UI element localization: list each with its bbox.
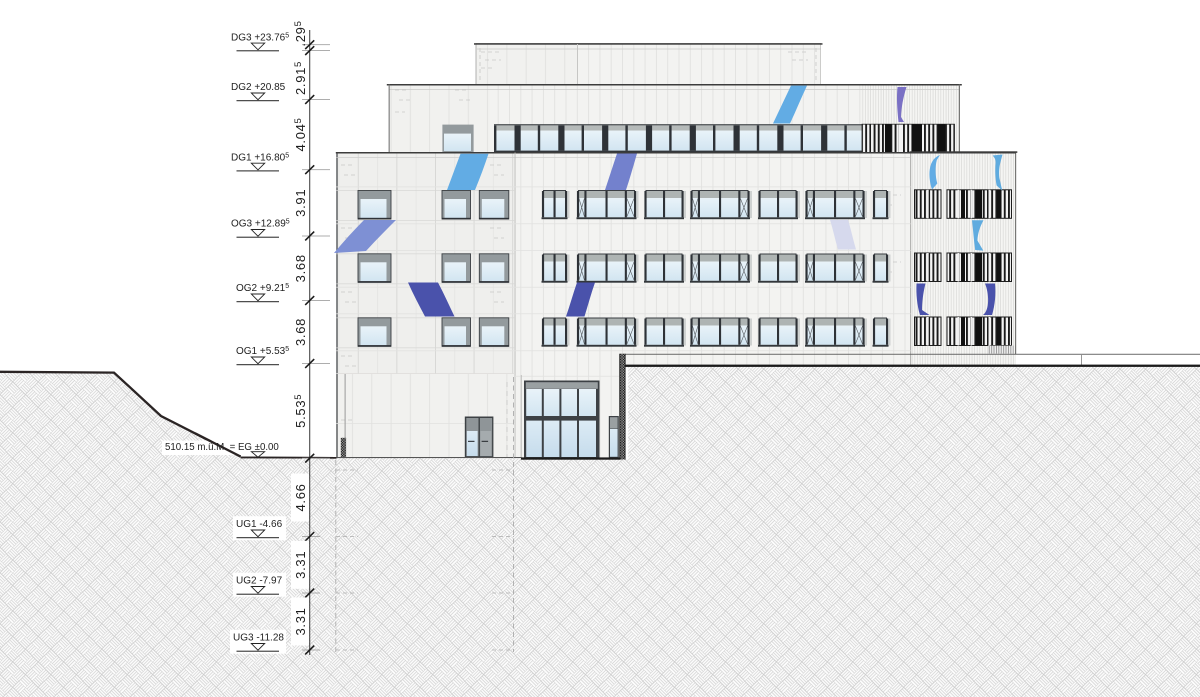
svg-text:UG3 -11.28: UG3 -11.28 [233, 633, 284, 644]
svg-text:3.68: 3.68 [293, 318, 308, 346]
svg-text:3.68: 3.68 [293, 254, 308, 282]
svg-text:3.31: 3.31 [293, 607, 308, 635]
svg-text:4.66: 4.66 [293, 483, 308, 511]
svg-text:UG2 -7.97: UG2 -7.97 [236, 576, 283, 587]
svg-text:3.91: 3.91 [293, 189, 308, 217]
svg-text:OG2 +9.215: OG2 +9.215 [236, 283, 289, 294]
svg-text:UG1 -4.66: UG1 -4.66 [236, 519, 283, 530]
svg-text:DG1 +16.805: DG1 +16.805 [231, 152, 289, 163]
svg-text:OG3 +12.895: OG3 +12.895 [231, 219, 290, 230]
svg-text:3.31: 3.31 [293, 551, 308, 579]
svg-text:DG3 +23.765: DG3 +23.765 [231, 32, 289, 43]
svg-text:OG1 +5.535: OG1 +5.535 [236, 346, 289, 357]
svg-text:DG2 +20.85: DG2 +20.85 [231, 82, 286, 93]
